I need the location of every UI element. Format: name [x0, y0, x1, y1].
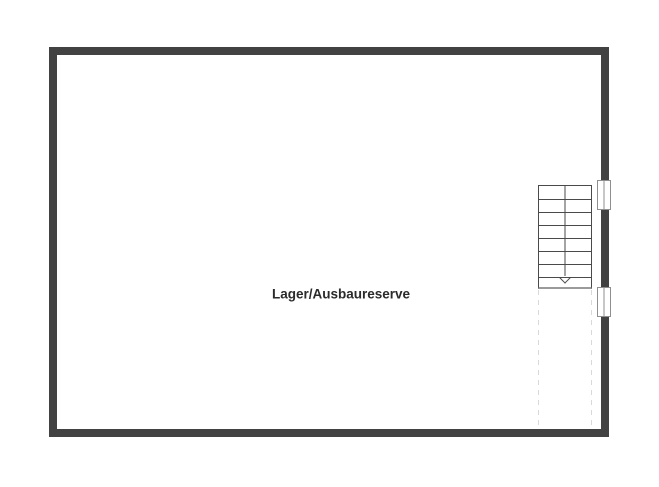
stair-run-line [565, 186, 566, 276]
floorplan-canvas: Lager/Ausbaureserve [0, 0, 659, 487]
window-pane-line [604, 181, 605, 209]
stair-projection-dashed-line-right [591, 290, 592, 428]
window-lower-right [597, 287, 611, 317]
window-upper-right [597, 180, 611, 210]
window-pane-line [604, 288, 605, 316]
room-outline-walls [49, 47, 609, 437]
room-label: Lager/Ausbaureserve [272, 287, 410, 302]
stair-projection-dashed-line-left [538, 290, 539, 428]
